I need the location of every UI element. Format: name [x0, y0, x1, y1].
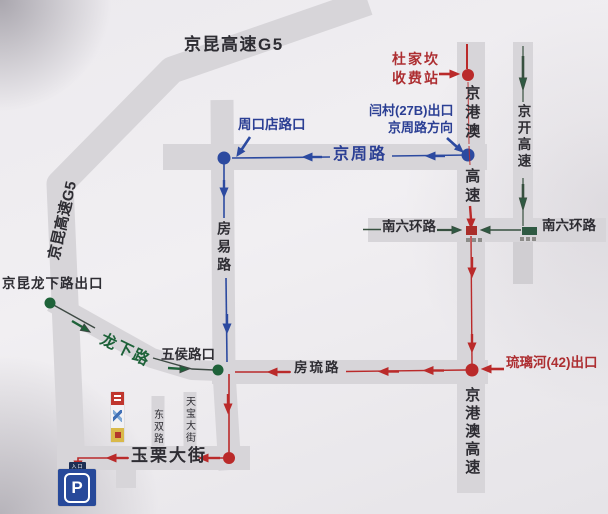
label-dujiakan-line1: 杜家坎: [392, 51, 440, 67]
signboard-red-block: [111, 392, 124, 405]
route-blue: [218, 137, 475, 362]
junction-dot-longxia-exit: [45, 298, 56, 309]
label-zhoukoudian-intersection: 周口店路口: [238, 117, 306, 133]
map-graphics: [0, 0, 608, 514]
junction-dot-yuli: [223, 452, 235, 464]
label-dongshuang-road: 东双路: [151, 409, 163, 445]
label-jinggangao-expressway: 京港澳高速: [463, 387, 480, 477]
signboard-logo-block: [111, 405, 124, 428]
label-yuli-street: 玉栗大街: [131, 446, 207, 466]
junction-dot-yancun-exit: [462, 149, 475, 162]
destination-signboard: [111, 392, 124, 442]
junction-dot-zhoukoudian: [218, 152, 231, 165]
label-liulihe-exit: 琉璃河(42)出口: [506, 355, 598, 371]
parking-p-icon: P: [64, 473, 90, 503]
label-jingkai-expressway: 京开高速: [515, 104, 531, 170]
label-nanliuhuan-left: 南六环路: [382, 219, 436, 235]
label-yancun-exit-line2: 京周路方向: [388, 121, 453, 136]
bridge-marker-red: [466, 226, 477, 235]
label-jingkun-longxia-exit: 京昆龙下路出口: [2, 276, 104, 292]
bridge-marker-green: [522, 227, 537, 235]
label-tianbao-street: 天宝大街: [183, 396, 195, 444]
label-jingkun-g5-top: 京昆高速G5: [184, 35, 284, 55]
label-nanliuhuan-right: 南六环路: [542, 218, 596, 234]
label-fangliu-road: 房琉路: [294, 360, 341, 376]
label-yancun-exit-line1: 闫村(27B)出口: [369, 104, 454, 119]
label-jingzhou-road: 京周路: [333, 146, 387, 164]
label-jinggangao: 京港澳: [463, 85, 480, 142]
label-gaosu: 高速: [463, 168, 480, 206]
label-wuhou-intersection: 五侯路口: [161, 347, 215, 363]
junction-dot-liulihe-exit: [466, 364, 479, 377]
route-map: 京昆高速G5 京昆高速G5 周口店路口 京周路 闫村(27B)出口 京周路方向 …: [0, 0, 608, 514]
label-fangyi-road: 房易路: [216, 221, 232, 275]
parking-sign: P: [58, 469, 96, 506]
junction-dot-wuhou: [213, 365, 224, 376]
signboard-yellow-block: [111, 428, 124, 442]
label-dujiakan-line2: 收费站: [392, 70, 440, 86]
junction-dot-dujiakan: [462, 69, 474, 81]
